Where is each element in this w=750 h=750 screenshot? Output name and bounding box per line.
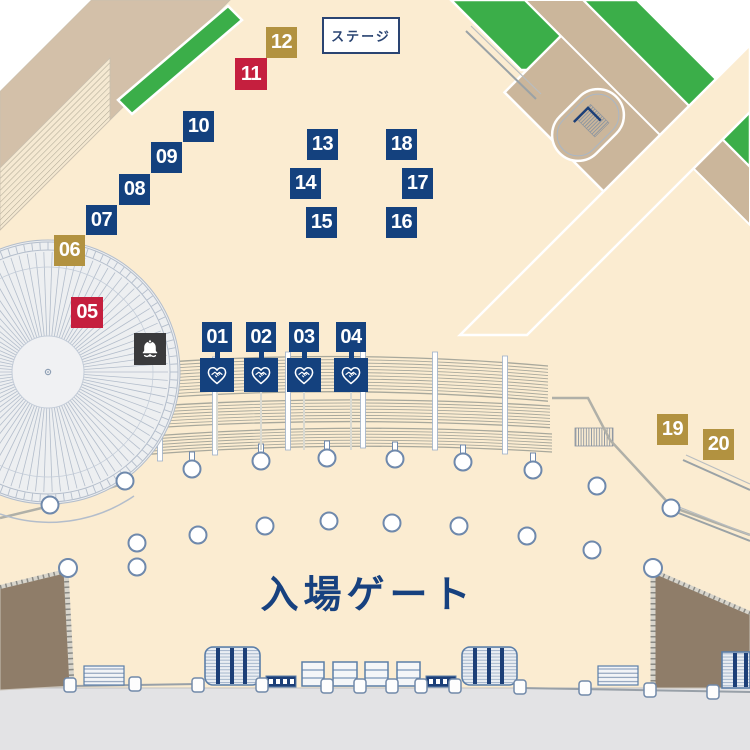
- booth-handshake-square: [244, 358, 278, 392]
- booth-number: 18: [391, 133, 412, 156]
- booth-marker-10: 10: [183, 111, 214, 142]
- handshake-in-heart-icon: [205, 363, 229, 387]
- booth-number: 14: [295, 172, 316, 195]
- venue-map: ステージ 入場ゲート 01020304050607080910111213141…: [0, 0, 750, 750]
- booth-marker-08: 08: [119, 174, 150, 205]
- booth-marker-12: 12: [266, 27, 297, 58]
- booth-marker-06: 06: [54, 235, 85, 266]
- booth-marker-15: 15: [306, 207, 337, 238]
- outside-area: [0, 688, 750, 750]
- booth-marker-09: 09: [151, 142, 182, 173]
- booth-number: 04: [340, 326, 361, 349]
- handshake-in-heart-icon: [292, 363, 316, 387]
- booth-marker-18: 18: [386, 129, 417, 160]
- booth-marker-05: 05: [71, 297, 103, 328]
- bench-right: [598, 666, 638, 685]
- booth-number: 12: [271, 31, 292, 54]
- booth-marker-03: 03: [289, 322, 319, 352]
- booth-marker-14: 14: [290, 168, 321, 199]
- booth-handshake-square: [287, 358, 321, 392]
- booth-marker-13: 13: [307, 129, 338, 160]
- map-background: [0, 0, 750, 750]
- booth-number: 13: [312, 133, 333, 156]
- handshake-in-heart-icon: [249, 363, 273, 387]
- booth-marker-04: 04: [336, 322, 366, 352]
- gate-building-right: [462, 647, 517, 685]
- stage-area: ステージ: [322, 17, 400, 54]
- bell-icon: [138, 337, 162, 361]
- booth-number: 15: [311, 211, 332, 234]
- gate-building-left: [205, 647, 260, 685]
- handshake-in-heart-icon: [339, 363, 363, 387]
- booth-number: 06: [59, 239, 80, 262]
- booth-number: 17: [407, 172, 428, 195]
- booth-handshake-square: [334, 358, 368, 392]
- booth-pole: [303, 392, 305, 450]
- booth-number: 16: [391, 211, 412, 234]
- booth-number: 11: [241, 63, 261, 86]
- booth-number: 01: [206, 326, 227, 349]
- booth-number: 10: [188, 115, 209, 138]
- booth-number: 07: [91, 209, 112, 232]
- bench-left: [84, 666, 124, 685]
- stage-label: ステージ: [331, 26, 391, 45]
- booth-marker-19: 19: [657, 414, 688, 445]
- booth-marker-11: 11: [235, 58, 267, 90]
- booth-pole: [350, 392, 352, 450]
- booth-number: 02: [250, 326, 271, 349]
- booth-marker-02: 02: [246, 322, 276, 352]
- booth-pole: [216, 392, 218, 450]
- entrance-gate-label: 入場ゲート: [260, 564, 475, 619]
- booth-marker-17: 17: [402, 168, 433, 199]
- booth-number: 03: [293, 326, 314, 349]
- gate-building-far-right: [722, 652, 750, 688]
- booth-number: 09: [156, 146, 177, 169]
- booth-number: 08: [124, 178, 145, 201]
- booth-marker-20: 20: [703, 429, 734, 460]
- bell-marker: [134, 333, 166, 365]
- booth-number: 20: [708, 433, 729, 456]
- booth-number: 19: [662, 418, 683, 441]
- booth-number: 05: [76, 301, 97, 324]
- booth-handshake-square: [200, 358, 234, 392]
- booth-marker-16: 16: [386, 207, 417, 238]
- turnstile-left: [266, 676, 296, 687]
- booth-marker-01: 01: [202, 322, 232, 352]
- booth-marker-07: 07: [86, 205, 117, 235]
- booth-pole: [260, 392, 262, 450]
